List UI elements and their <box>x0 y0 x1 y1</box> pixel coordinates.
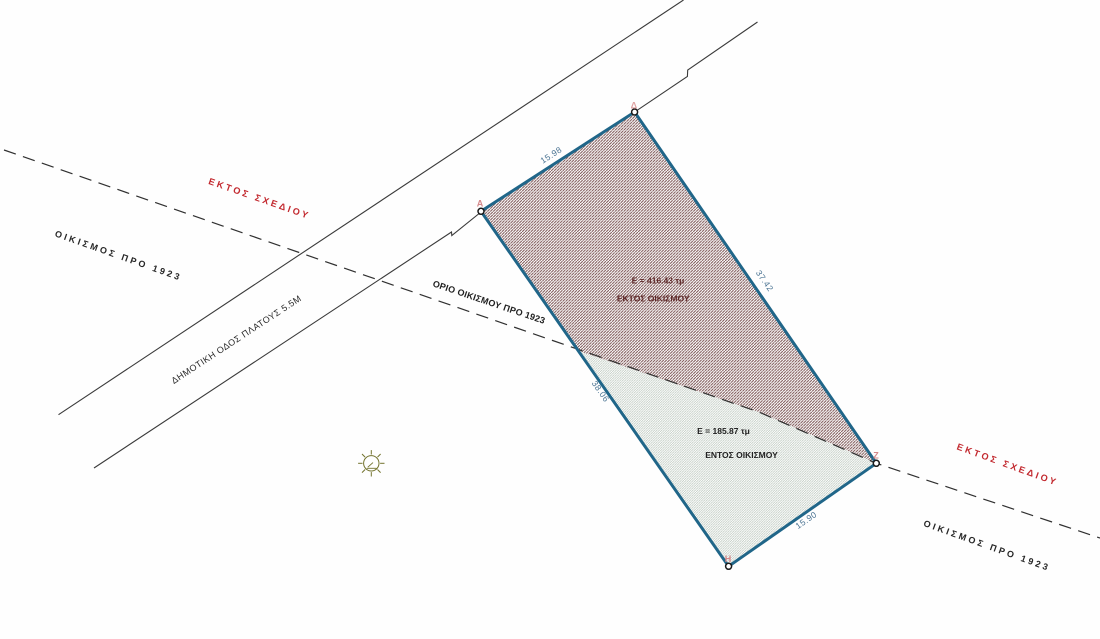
svg-text:ΕΚΤΟΣ ΟΙΚΙΣΜΟΥ: ΕΚΤΟΣ ΟΙΚΙΣΜΟΥ <box>617 294 690 304</box>
svg-text:Ε = 185.87 τμ: Ε = 185.87 τμ <box>697 426 750 436</box>
svg-text:ΕΝΤΟΣ ΟΙΚΙΣΜΟΥ: ΕΝΤΟΣ ΟΙΚΙΣΜΟΥ <box>705 450 778 460</box>
svg-text:Α: Α <box>477 199 484 209</box>
svg-text:Δ: Δ <box>631 101 638 111</box>
svg-text:Η: Η <box>725 554 732 564</box>
svg-text:Ζ: Ζ <box>873 451 879 461</box>
svg-text:Ε = 416.43 τμ: Ε = 416.43 τμ <box>632 276 685 286</box>
